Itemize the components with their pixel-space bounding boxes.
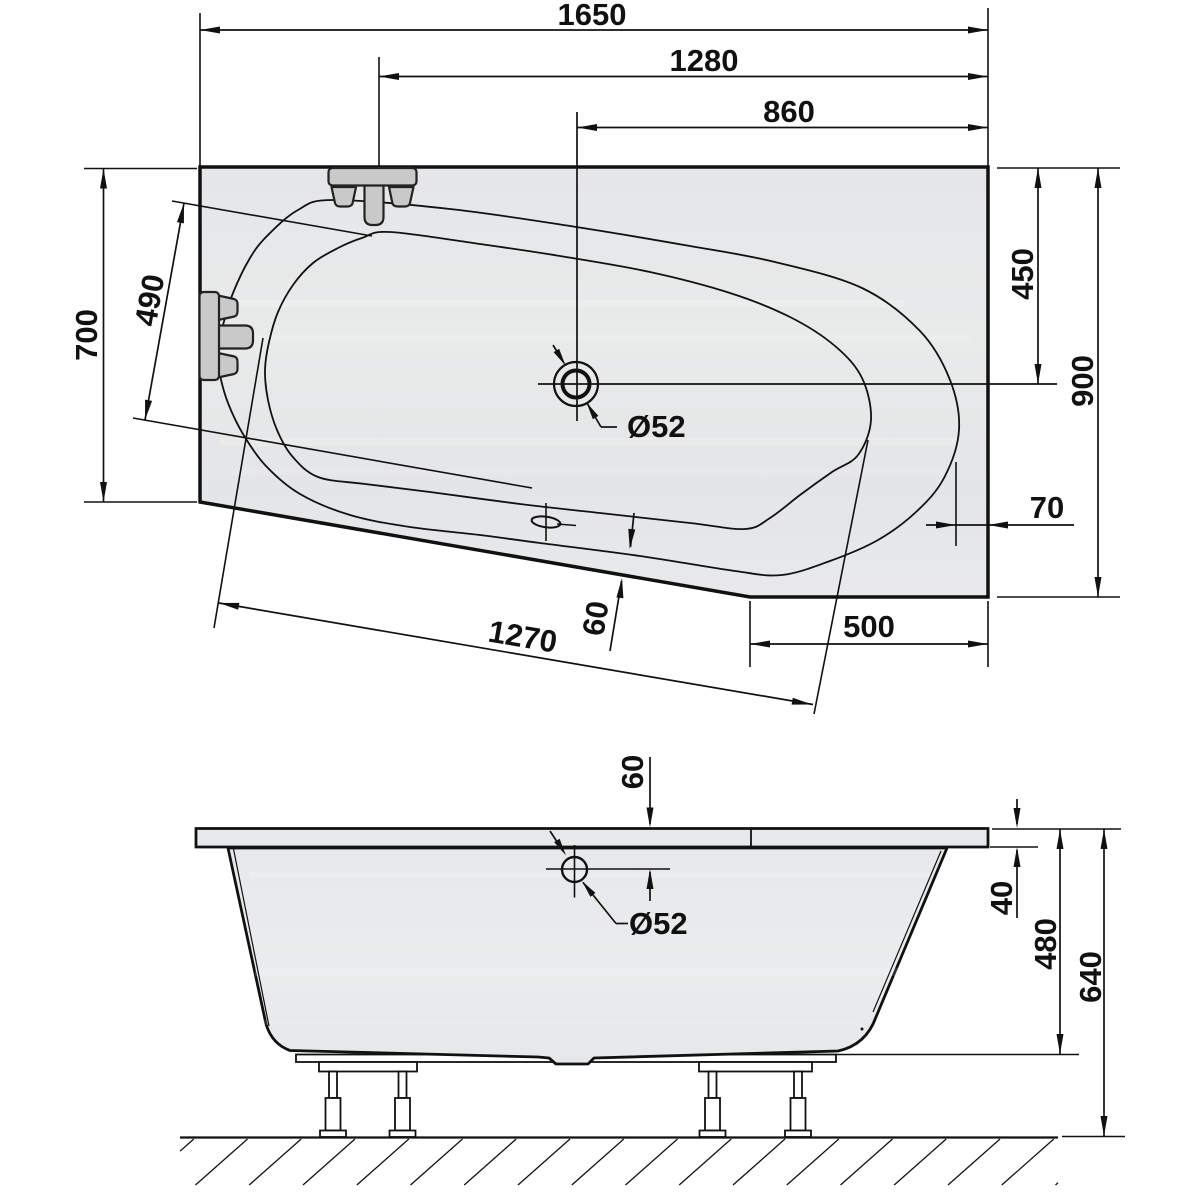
svg-text:40: 40 <box>984 881 1019 915</box>
svg-text:60: 60 <box>576 599 616 639</box>
svg-text:70: 70 <box>1030 490 1064 525</box>
svg-text:1280: 1280 <box>670 43 739 78</box>
svg-text:900: 900 <box>1065 355 1100 407</box>
svg-text:860: 860 <box>763 94 815 129</box>
svg-text:700: 700 <box>69 309 104 361</box>
svg-text:640: 640 <box>1073 951 1108 1003</box>
svg-text:450: 450 <box>1005 248 1040 300</box>
svg-text:480: 480 <box>1028 918 1063 970</box>
svg-text:Ø52: Ø52 <box>627 409 686 444</box>
svg-text:Ø52: Ø52 <box>629 906 688 941</box>
svg-text:500: 500 <box>843 609 895 644</box>
svg-text:1650: 1650 <box>558 0 627 32</box>
svg-text:60: 60 <box>615 755 650 789</box>
